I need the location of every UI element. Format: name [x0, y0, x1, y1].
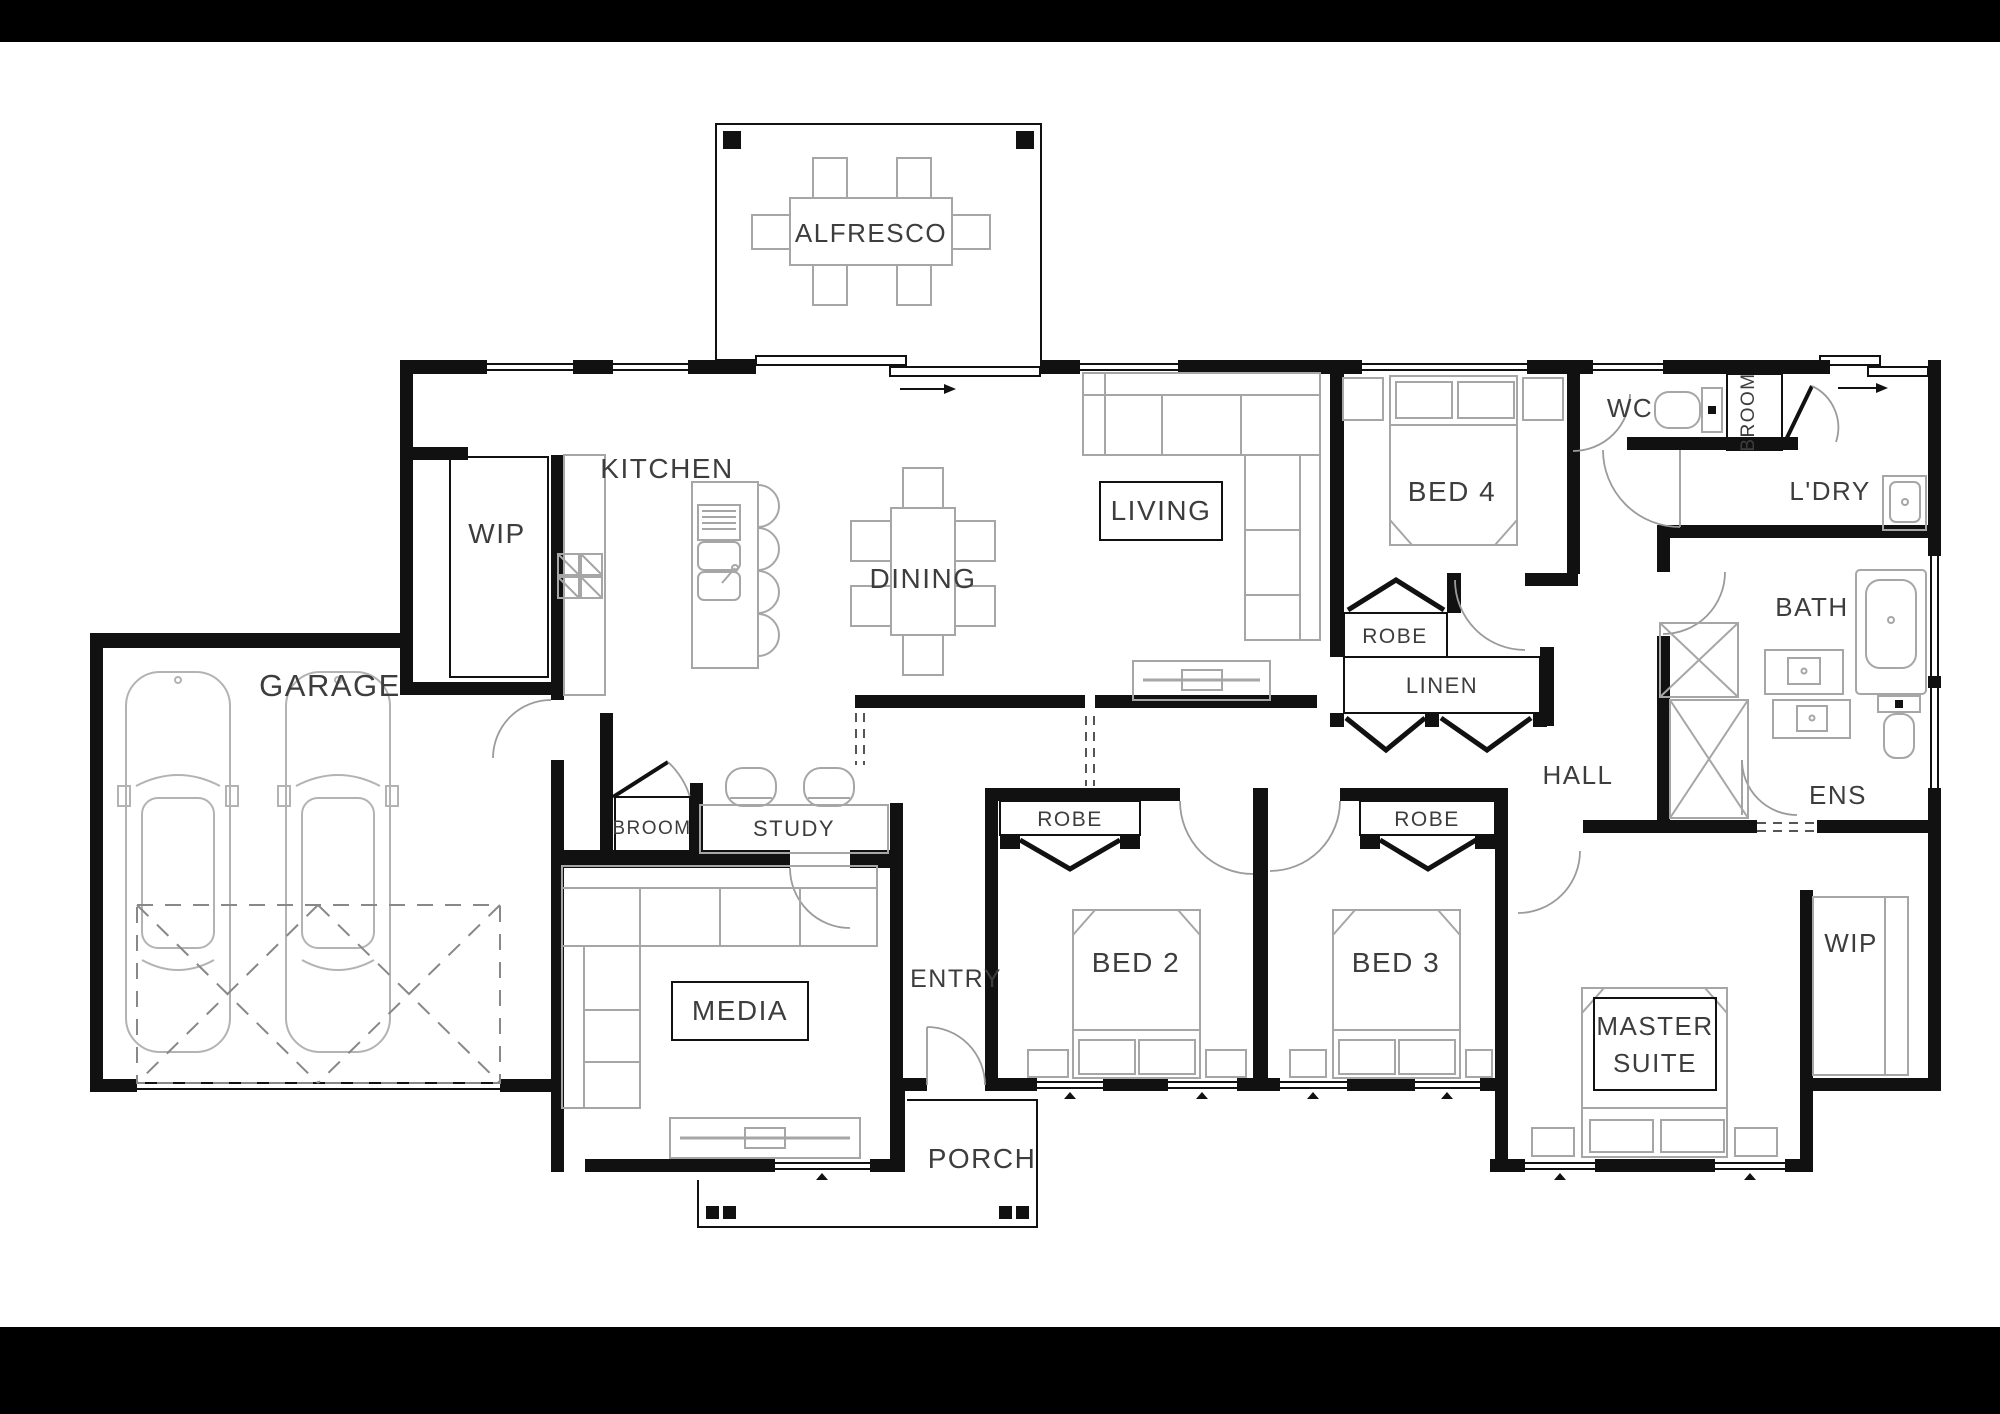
bedside-table-icon [1466, 1050, 1492, 1077]
toilet-icon [1655, 388, 1722, 432]
stool-icon [758, 485, 779, 527]
bed3-furniture [1290, 910, 1492, 1078]
room-label-garage: GARAGE [259, 668, 401, 703]
ensuite-door-icon [1742, 760, 1797, 815]
alfresco-post-icon [723, 131, 741, 149]
stool-icon [758, 528, 779, 570]
room-label-wc: WC [1607, 393, 1653, 423]
room-label-entry: ENTRY [910, 965, 1002, 993]
window-icon [613, 360, 688, 374]
bed2-door-icon [1180, 801, 1253, 874]
desk-chair-icon [804, 768, 854, 806]
door-direction-arrow-icon [944, 384, 956, 394]
sofa-media-icon [562, 866, 877, 1108]
room-label-linen: LINEN [1406, 673, 1478, 698]
room-label-kitchen: KITCHEN [600, 453, 733, 484]
broom-study-door-leaf-icon [613, 762, 668, 797]
kitchen-fixtures [558, 455, 779, 695]
window-icon [1362, 360, 1527, 374]
laundry-door-icon [1603, 450, 1680, 527]
bifold-robe-bed4-icon [1348, 580, 1444, 610]
alfresco-post-icon [1016, 131, 1034, 149]
room-label-robe-bed3: ROBE [1394, 808, 1460, 831]
bed-icon [1390, 376, 1517, 545]
bedside-table-icon [1206, 1050, 1246, 1077]
bedside-table-icon [1290, 1050, 1326, 1077]
vanity-bath-icon [1765, 650, 1843, 694]
room-label-alfresco: ALFRESCO [795, 218, 947, 248]
bedside-table-icon [1028, 1050, 1068, 1077]
door-swings [493, 386, 1838, 1085]
room-label-broom-cupboard: BROOM [1738, 372, 1759, 451]
toilet-ens-icon [1878, 696, 1920, 758]
window-icon [1525, 1159, 1595, 1180]
stool-icon [758, 614, 779, 656]
room-label-laundry: L'DRY [1789, 476, 1870, 506]
room-label-robe-bed2: ROBE [1037, 808, 1103, 831]
bed-icon [1073, 910, 1200, 1078]
tv-unit-living-icon [1133, 661, 1270, 700]
bedside-table-icon [1532, 1128, 1574, 1156]
tv-unit-media-icon [670, 1118, 860, 1158]
kitchen-island-icon [692, 482, 779, 668]
vanity-ens-icon [1773, 700, 1850, 738]
window-icon [1037, 1078, 1103, 1099]
porch-post-icon [999, 1206, 1012, 1219]
bedside-table-icon [1343, 378, 1383, 420]
bedside-table-icon [1735, 1128, 1777, 1156]
window-icon [1280, 1078, 1347, 1099]
porch-post-icon [723, 1206, 736, 1219]
window-icon [1928, 556, 1941, 676]
room-label-pantry: WIP [468, 518, 525, 549]
bed4-furniture [1343, 376, 1563, 545]
garage-door-icon [137, 1079, 500, 1092]
parking-bay-dashed-icon [137, 905, 500, 1083]
bifold-robe-bed2-icon [1020, 840, 1120, 869]
window-icon [1168, 1078, 1237, 1099]
room-label-media: MEDIA [692, 995, 788, 1026]
room-label-master-line2: SUITE [1613, 1048, 1697, 1078]
bed-icon [1333, 910, 1460, 1078]
interior-walls [413, 374, 1941, 1172]
garage-access-door-icon [493, 700, 551, 758]
floor-plan-page: ALFRESCO WIP KITCHEN DINING LIVING BED 4… [0, 0, 2000, 1414]
bed4-door-icon [1455, 580, 1525, 650]
room-label-hall: HALL [1542, 760, 1613, 790]
window-icon [1715, 1159, 1785, 1180]
laundry-tub-icon [1883, 476, 1926, 530]
pantry-shelves-icon [450, 457, 548, 677]
bifold-robe-bed3-icon [1380, 840, 1476, 869]
room-label-broom-study: BROOM [612, 818, 691, 839]
room-label-bed2: BED 2 [1092, 947, 1180, 978]
window-icon [487, 360, 573, 374]
window-icon [1928, 688, 1941, 788]
room-label-bed3: BED 3 [1352, 947, 1440, 978]
bed3-door-icon [1270, 801, 1340, 871]
room-label-porch: PORCH [928, 1143, 1037, 1174]
room-label-bath: BATH [1775, 592, 1848, 622]
wip-master-shelves-icon [1813, 897, 1908, 1075]
room-label-ensuite: ENS [1809, 780, 1867, 810]
master-door-icon [1518, 851, 1580, 913]
bedside-table-icon [1523, 378, 1563, 420]
room-label-robe-bed4: ROBE [1362, 625, 1428, 648]
shower-ens-icon [1670, 700, 1748, 818]
room-label-dining: DINING [870, 563, 977, 594]
room-label-wip-master: WIP [1824, 928, 1878, 958]
bath-door-icon [1663, 572, 1725, 634]
bed2-furniture [1028, 910, 1246, 1078]
bifold-linen-icon [1346, 718, 1425, 750]
window-icon [1415, 1078, 1480, 1099]
sink-icon [698, 505, 740, 600]
bifold-linen-icon [1441, 718, 1531, 750]
room-label-master-line1: MASTER [1596, 1011, 1713, 1041]
window-icon [1080, 360, 1178, 374]
window-icon [1593, 360, 1663, 374]
sliding-door-icon [756, 356, 1040, 394]
room-label-living: LIVING [1111, 495, 1212, 526]
window-icon [775, 1159, 870, 1180]
shower-bath-icon [1660, 623, 1738, 697]
sliding-door-icon [1820, 356, 1928, 393]
porch-post-icon [1016, 1206, 1029, 1219]
living-fixtures [1083, 373, 1320, 700]
bathtub-icon [1856, 570, 1926, 694]
door-direction-arrow-icon [1876, 383, 1888, 393]
front-door-icon [927, 1027, 985, 1085]
porch-post-icon [706, 1206, 719, 1219]
room-label-bed4: BED 4 [1408, 476, 1496, 507]
desk-chair-icon [726, 768, 776, 806]
stool-icon [758, 571, 779, 613]
floor-plan-drawing: ALFRESCO WIP KITCHEN DINING LIVING BED 4… [0, 0, 2000, 1414]
garage-contents [118, 672, 500, 1083]
room-label-study: STUDY [753, 816, 835, 841]
